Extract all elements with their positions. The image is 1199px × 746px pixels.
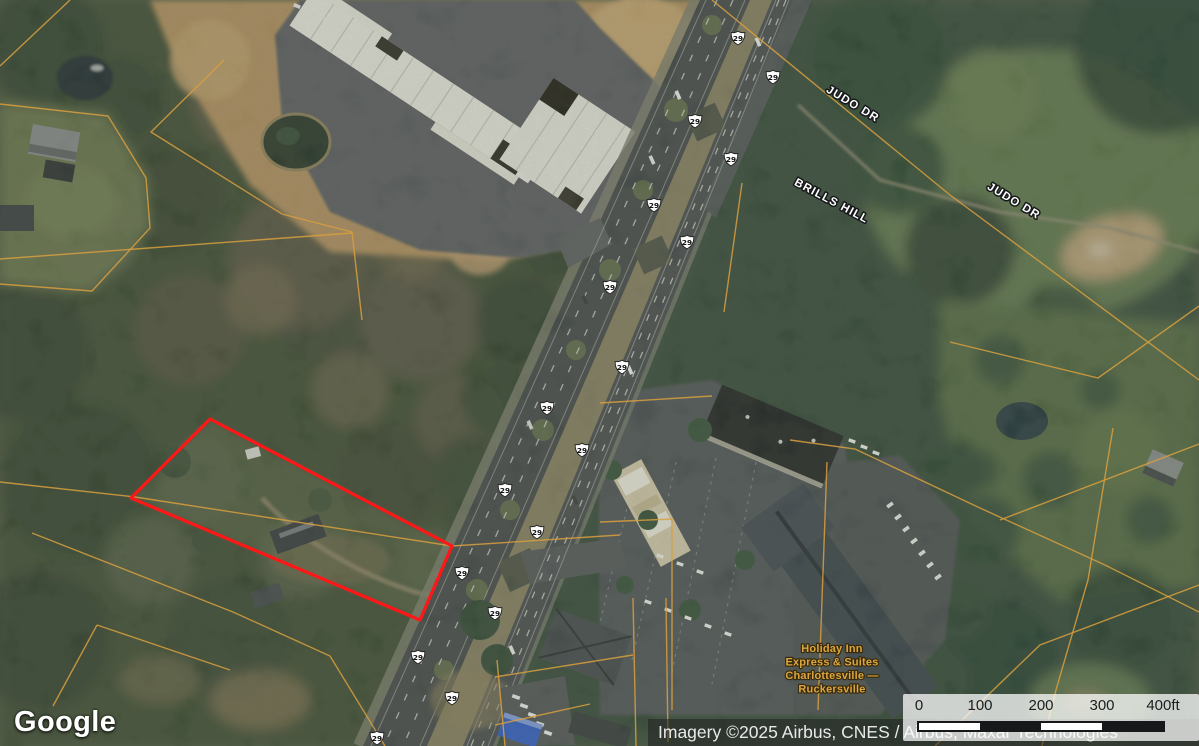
svg-text:29: 29: [372, 734, 382, 743]
svg-text:29: 29: [768, 73, 778, 82]
route-29-shield: 29: [724, 152, 738, 166]
scale-bar-segments: [917, 721, 1165, 732]
route-29-shield: 29: [615, 360, 629, 374]
svg-text:29: 29: [649, 201, 659, 210]
route-29-shield: 29: [445, 691, 459, 705]
scale-tick: 0: [915, 697, 923, 714]
route-29-shield: 29: [766, 70, 780, 84]
scale-segment: [919, 723, 980, 730]
svg-text:29: 29: [500, 486, 510, 495]
scale-segment: [980, 723, 1041, 730]
svg-text:29: 29: [605, 283, 615, 292]
svg-text:29: 29: [457, 569, 467, 578]
poi-label-line: Holiday Inn: [801, 643, 863, 655]
svg-text:29: 29: [682, 238, 692, 247]
route-29-shield: 29: [647, 198, 661, 212]
poi-label-line: Ruckersville: [798, 684, 865, 696]
svg-text:29: 29: [726, 155, 736, 164]
route-29-shield: 29: [688, 114, 702, 128]
map-canvas[interactable]: 2929292929292929292929292929292929 JUDO …: [0, 0, 1199, 746]
poi-label-line: Charlottesville —: [785, 670, 878, 682]
svg-text:29: 29: [577, 446, 587, 455]
tone-overlay: [0, 0, 1199, 746]
scale-tick: 100: [967, 697, 992, 714]
scale-tick: 300: [1089, 697, 1114, 714]
scale-segment: [1102, 723, 1163, 730]
svg-text:29: 29: [413, 653, 423, 662]
svg-text:29: 29: [447, 694, 457, 703]
svg-text:29: 29: [490, 609, 500, 618]
route-29-shield: 29: [575, 443, 589, 457]
svg-text:29: 29: [690, 117, 700, 126]
scale-bar[interactable]: 0100200300400ft: [903, 694, 1199, 741]
route-29-shield: 29: [540, 401, 554, 415]
route-29-shield: 29: [680, 235, 694, 249]
svg-text:29: 29: [542, 404, 552, 413]
satellite-imagery: 2929292929292929292929292929292929 JUDO …: [0, 0, 1199, 746]
svg-text:29: 29: [733, 34, 743, 43]
route-29-shield: 29: [530, 525, 544, 539]
route-29-shield: 29: [731, 31, 745, 45]
svg-text:29: 29: [532, 528, 542, 537]
google-logo[interactable]: Google: [14, 706, 116, 739]
route-29-shield: 29: [498, 483, 512, 497]
scale-tick: 400ft: [1146, 697, 1179, 714]
route-29-shield: 29: [603, 280, 617, 294]
scale-segment: [1041, 723, 1102, 730]
route-29-shield: 29: [455, 566, 469, 580]
scale-tick: 200: [1028, 697, 1053, 714]
route-29-shield: 29: [370, 731, 384, 745]
poi-label-line: Express & Suites: [785, 657, 878, 669]
svg-text:29: 29: [617, 363, 627, 372]
route-29-shield: 29: [411, 650, 425, 664]
route-29-shield: 29: [488, 606, 502, 620]
